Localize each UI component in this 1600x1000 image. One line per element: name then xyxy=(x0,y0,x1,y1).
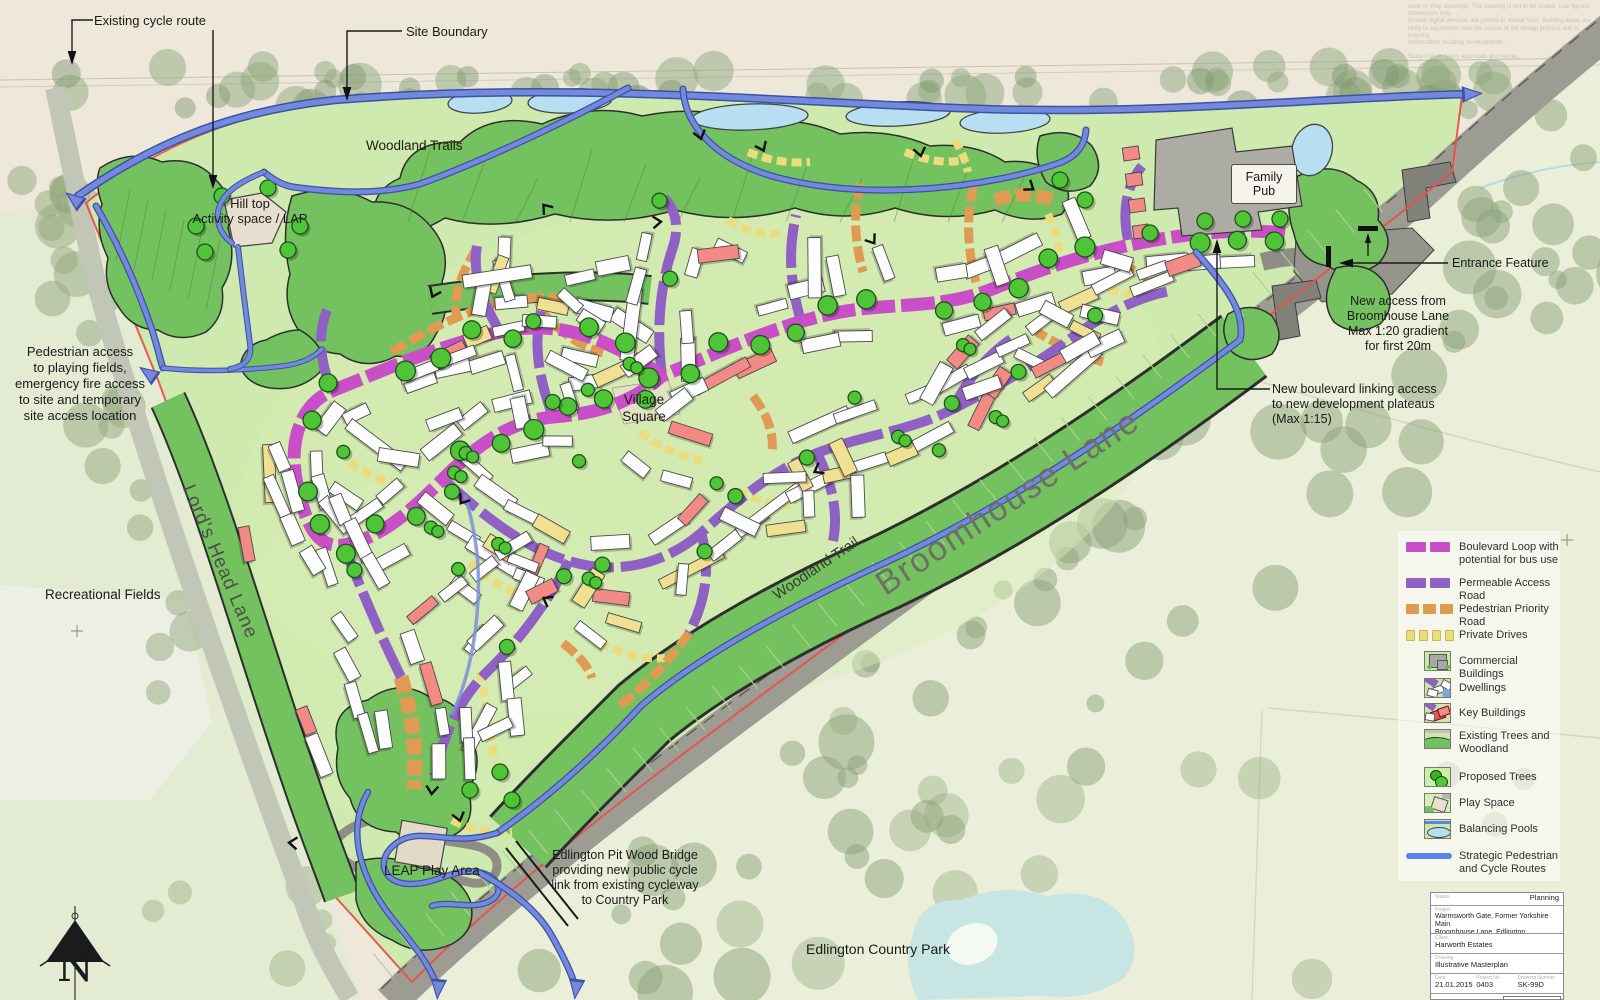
proposed-tree xyxy=(280,242,296,258)
legend-item-play-space: Play Space xyxy=(1406,793,1515,813)
key-building xyxy=(1128,198,1146,213)
proposed-tree xyxy=(595,557,610,572)
proposed-tree xyxy=(997,415,1009,427)
title-block-drawing-row: Drawing Illustrative Masterplan xyxy=(1431,954,1563,974)
annotation-family-pub: Family Pub xyxy=(1231,164,1297,204)
legend-item-proposed-trees: Proposed Trees xyxy=(1406,767,1537,787)
proposed-tree xyxy=(1272,211,1288,227)
proposed-tree xyxy=(467,451,479,463)
proposed-tree xyxy=(709,333,728,352)
annotation-country-park: Edlington Country Park xyxy=(806,941,950,957)
annotation-site-boundary: Site Boundary xyxy=(406,24,488,39)
annotation-new-access: New access from Broomhouse Lane Max 1:20… xyxy=(1330,294,1466,354)
legend-item-commercial: Commercial Buildings xyxy=(1406,651,1560,680)
masterplan-page: { "page": { "title": "Illustrative Maste… xyxy=(0,0,1600,1000)
proposed-tree xyxy=(1052,172,1068,188)
legend-item-permeable: Permeable Access Road xyxy=(1406,577,1560,602)
proposed-tree xyxy=(319,374,337,392)
legend-item-dwellings: Dwellings xyxy=(1406,678,1506,698)
title-block-partial-row xyxy=(1431,994,1563,1000)
proposed-tree xyxy=(526,314,541,329)
proposed-tree xyxy=(366,515,384,533)
proposed-tree xyxy=(1039,249,1057,267)
proposed-tree xyxy=(974,293,991,310)
title-block-meta-row: Date21.01.2015 Project No0403 Drawing Nu… xyxy=(1431,974,1563,994)
private-drives-swatch-icon xyxy=(1406,629,1454,641)
annotation-entrance-feature: Entrance Feature xyxy=(1452,256,1549,270)
proposed-tree xyxy=(336,544,355,563)
proposed-tree xyxy=(1197,213,1213,229)
proposed-tree xyxy=(499,639,514,654)
commercial-buildings-icon xyxy=(1424,651,1451,671)
proposed-tree xyxy=(1011,364,1026,379)
proposed-tree xyxy=(652,193,667,208)
legend-item-private-drives: Private Drives xyxy=(1406,629,1527,642)
dwelling xyxy=(464,738,476,780)
dwelling xyxy=(803,491,815,518)
play-space-icon xyxy=(1424,793,1451,813)
proposed-tree xyxy=(1190,233,1210,253)
status-value: Planning xyxy=(1530,894,1559,903)
annotation-hilltop: Hill top Activity space / LAP xyxy=(165,196,335,226)
drawing-notes: work or shop drawings. This drawing is n… xyxy=(1408,4,1598,62)
pedestrian-priority-road xyxy=(995,195,1056,201)
proposed-tree xyxy=(1009,279,1028,298)
proposed-tree xyxy=(1088,308,1103,323)
legend-item-existing-trees: Existing Trees and Woodland xyxy=(1406,729,1550,755)
proposed-tree xyxy=(1235,211,1251,227)
proposed-tree xyxy=(1228,231,1246,249)
proposed-tree xyxy=(848,391,861,404)
north-arrow-letter: N xyxy=(57,942,94,991)
proposed-trees-icon xyxy=(1424,767,1451,787)
proposed-tree xyxy=(303,411,321,429)
proposed-tree xyxy=(462,782,478,798)
proposed-tree xyxy=(499,542,511,554)
proposed-tree xyxy=(581,383,594,396)
proposed-tree xyxy=(1142,225,1158,241)
annotation-new-boulevard: New boulevard linking access to new deve… xyxy=(1272,382,1467,427)
project-no-value: 0403 xyxy=(1476,981,1517,990)
cycle-route-swatch-icon xyxy=(1406,853,1452,859)
dwellings-icon xyxy=(1424,678,1451,698)
boulevard-swatch-icon xyxy=(1406,541,1454,553)
proposed-tree xyxy=(799,450,814,465)
proposed-tree xyxy=(944,396,959,411)
proposed-tree xyxy=(556,569,571,584)
proposed-tree xyxy=(463,321,481,339)
legend-item-boulevard: Boulevard Loop with potential for bus us… xyxy=(1406,541,1559,566)
proposed-tree xyxy=(337,445,350,458)
dwelling xyxy=(432,744,446,779)
title-block-client-row: Client Harworth Estates xyxy=(1431,934,1563,954)
proposed-tree xyxy=(573,455,586,468)
proposed-tree xyxy=(407,508,425,526)
proposed-tree xyxy=(616,333,636,353)
annotation-woodland-trails: Woodland Trails xyxy=(366,138,463,153)
annotation-pedestrian-access: Pedestrian access to playing fields, eme… xyxy=(6,344,154,424)
proposed-tree xyxy=(681,364,699,382)
proposed-tree xyxy=(492,764,508,780)
dwelling xyxy=(1217,255,1254,268)
key-building xyxy=(1122,146,1140,161)
proposed-tree xyxy=(787,324,804,341)
proposed-tree xyxy=(524,419,544,439)
pedestrian-swatch-icon xyxy=(1406,603,1454,615)
proposed-tree xyxy=(310,515,329,534)
proposed-tree xyxy=(663,271,678,286)
proposed-tree xyxy=(396,361,416,381)
dwelling xyxy=(763,472,806,484)
annotation-village-square: Village Square xyxy=(598,391,690,425)
drawing-value: Illustrative Masterplan xyxy=(1435,961,1559,970)
masterplan-map xyxy=(0,0,1600,1000)
title-block-status-row: Status Planning xyxy=(1431,893,1563,906)
proposed-tree xyxy=(452,563,465,576)
proposed-tree xyxy=(710,477,723,490)
proposed-tree xyxy=(899,435,911,447)
proposed-tree xyxy=(728,489,743,504)
proposed-tree xyxy=(444,484,459,499)
legend-panel: Boulevard Loop with potential for bus us… xyxy=(1398,531,1560,881)
proposed-tree xyxy=(1075,237,1095,257)
proposed-tree xyxy=(857,290,876,309)
key-building xyxy=(1125,172,1143,187)
permeable-swatch-icon xyxy=(1406,577,1454,589)
annotation-leap-play-area: LEAP Play Area xyxy=(384,863,480,878)
legend-item-balancing-pools: Balancing Pools xyxy=(1406,819,1538,839)
dwelling xyxy=(851,475,866,518)
title-block-project-row: Project Warmsworth Gate, Former Yorkshir… xyxy=(1431,906,1563,934)
project-value: Warmsworth Gate, Former Yorkshire Main B… xyxy=(1435,913,1559,934)
legend-item-cycle-routes: Strategic Pedestrian and Cycle Routes xyxy=(1406,850,1558,875)
proposed-tree xyxy=(631,362,643,374)
dwelling xyxy=(543,436,573,446)
proposed-tree xyxy=(1077,192,1093,208)
proposed-tree xyxy=(504,330,521,347)
dwelling xyxy=(676,563,689,595)
proposed-tree xyxy=(580,318,599,337)
proposed-tree xyxy=(1265,232,1283,250)
existing-trees-icon xyxy=(1424,729,1451,749)
proposed-tree xyxy=(818,296,837,315)
dwelling xyxy=(834,330,872,342)
annotation-existing-cycle-route: Existing cycle route xyxy=(94,13,206,28)
proposed-tree xyxy=(197,244,213,260)
entrance-feature-marker xyxy=(1326,246,1331,267)
proposed-tree xyxy=(431,348,451,368)
legend-item-pedestrian: Pedestrian Priority Road xyxy=(1406,603,1560,628)
dwelling xyxy=(680,310,694,343)
dwelling xyxy=(808,238,822,298)
proposed-tree xyxy=(347,563,362,578)
key-buildings-icon xyxy=(1424,703,1451,723)
proposed-tree xyxy=(751,336,770,355)
proposed-tree xyxy=(504,792,520,808)
proposed-tree xyxy=(299,482,318,501)
proposed-tree xyxy=(432,525,444,537)
proposed-tree xyxy=(936,302,953,319)
dwelling xyxy=(460,707,473,742)
proposed-tree xyxy=(492,434,510,452)
proposed-tree xyxy=(545,395,560,410)
proposed-tree xyxy=(455,471,467,483)
title-block: Status Planning Project Warmsworth Gate,… xyxy=(1430,892,1564,1000)
proposed-tree xyxy=(932,444,945,457)
proposed-tree xyxy=(697,544,712,559)
proposed-tree xyxy=(964,343,976,355)
proposed-tree xyxy=(590,577,602,589)
client-value: Harworth Estates xyxy=(1435,941,1559,950)
annotation-pit-wood-bridge: Edlington Pit Wood Bridge providing new … xyxy=(538,848,712,908)
legend-item-key-buildings: Key Buildings xyxy=(1406,703,1526,723)
annotation-recreational-fields: Recreational Fields xyxy=(45,587,161,602)
drawing-no-value: SK-99D xyxy=(1518,981,1559,990)
dwelling xyxy=(591,534,631,550)
balancing-pools-icon xyxy=(1424,819,1451,839)
date-value: 21.01.2015 xyxy=(1435,981,1476,990)
